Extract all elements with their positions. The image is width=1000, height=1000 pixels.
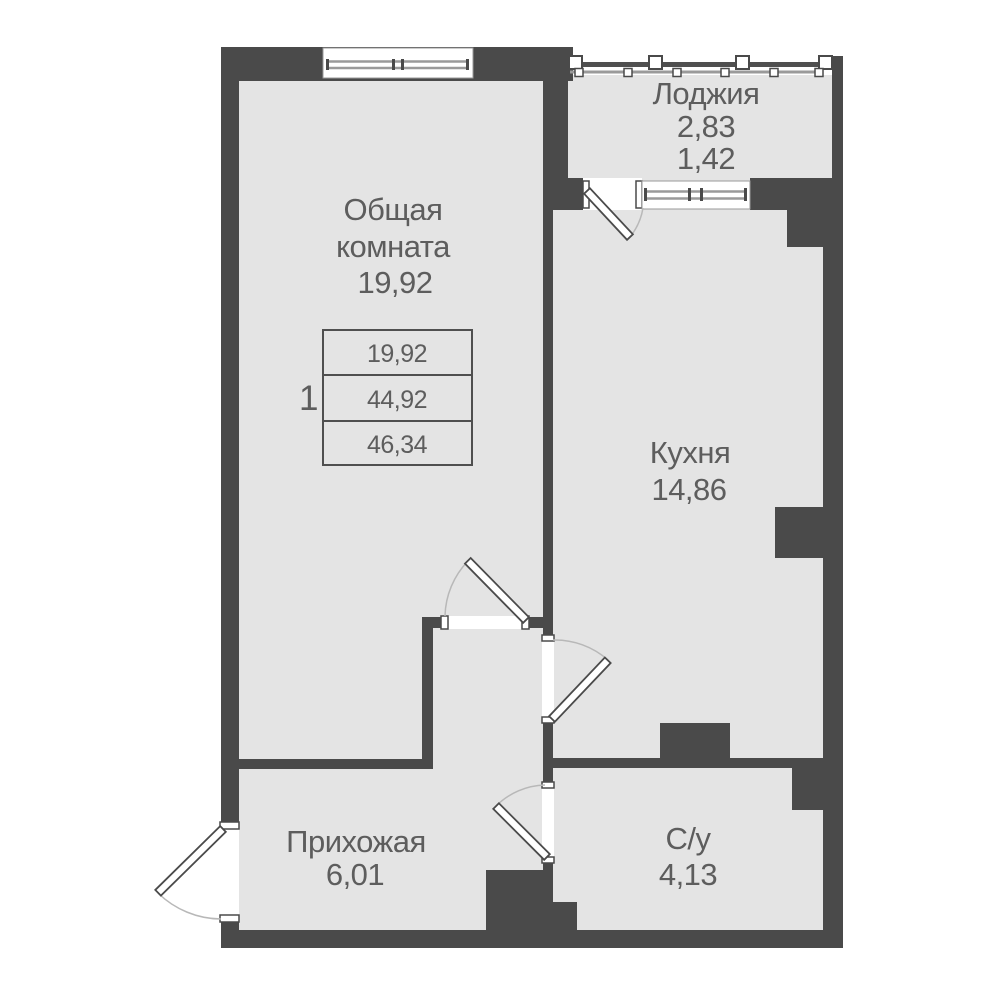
floor-plan: 1 19,92 44,92 46,34 Лоджия 2,83 1,42 Общ…	[0, 0, 1000, 1000]
bathroom-door-opening	[542, 788, 554, 857]
wall-bottom	[221, 930, 843, 948]
living-window-icon	[323, 48, 473, 78]
kitchen-loggia-window-icon	[642, 181, 750, 209]
kitchen-label: Кухня	[650, 435, 730, 470]
bathroom-label: С/у	[666, 821, 712, 856]
entry-door-opening	[221, 829, 239, 915]
wall-block-hallway-bottom	[486, 870, 553, 930]
wall-right	[823, 180, 843, 948]
summary-value-no-loggia: 44,92	[367, 386, 427, 414]
pilaster-kitchen-topright	[787, 210, 823, 247]
wall-loggia-right	[832, 56, 843, 180]
entry-door-leaf-icon	[155, 826, 226, 895]
wall-notch-kitchen-bottom	[660, 723, 730, 758]
wall-left	[221, 47, 239, 948]
door-jamb	[542, 635, 554, 641]
kitchen-area: 14,86	[651, 472, 726, 507]
wall-kitchen-bathroom	[553, 758, 823, 768]
entry-door-arc	[158, 893, 221, 919]
loggia-label: Лоджия	[653, 76, 760, 111]
hallway-label: Прихожая	[286, 824, 426, 859]
hallway-area: 6,01	[326, 857, 384, 892]
balcony-railing-icon	[569, 56, 832, 77]
wall-kitchen-top-right	[750, 178, 843, 210]
rooms-count: 1	[299, 379, 318, 418]
loggia-area: 2,83	[677, 109, 735, 144]
wall-step-bathroom-bottom	[553, 902, 577, 930]
summary-value-living: 19,92	[367, 340, 427, 368]
door-jamb	[220, 915, 239, 922]
bathroom-area: 4,13	[659, 857, 717, 892]
wall-hallway-ext	[422, 617, 433, 769]
living-door-opening	[448, 616, 522, 629]
pilaster-kitchen-midright	[775, 507, 823, 558]
kitchen-door-opening	[542, 641, 554, 717]
living-room-area: 19,92	[357, 265, 432, 300]
wall-living-loggia	[543, 47, 568, 180]
door-jamb	[441, 616, 448, 629]
living-room-label-line1: Общая	[344, 192, 443, 227]
wall-living-bottom	[221, 759, 433, 769]
wall-kitchen-top-left	[543, 178, 583, 210]
floor-plan-page: 1 19,92 44,92 46,34 Лоджия 2,83 1,42 Общ…	[0, 0, 1000, 1000]
loggia-area-secondary: 1,42	[677, 141, 735, 176]
summary-value-total: 46,34	[367, 431, 428, 459]
living-room-label-line2: комната	[336, 229, 451, 264]
pilaster-bathroom-topright	[792, 768, 823, 810]
area-summary-table: 1 19,92 44,92 46,34	[299, 330, 472, 465]
door-jamb	[636, 181, 642, 208]
